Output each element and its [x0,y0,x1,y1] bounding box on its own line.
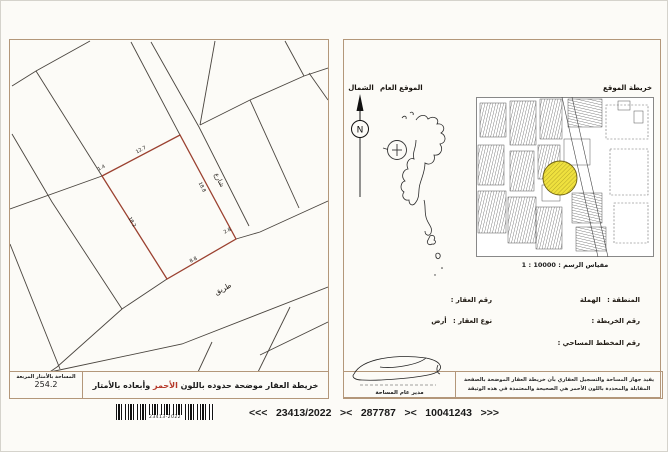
scanned-property-map-document: 1.4 12.7 18.8 2.8 8.8 18.2 شارع طريق الم… [0,0,668,452]
parcel-map-canvas [10,40,328,397]
field-parcel-number: رقم العقار : [451,296,492,304]
field-parcel-number-label: رقم العقار : [451,296,492,304]
barcode-label: 23413-2022 [147,415,183,420]
field-region-label: المنطقة : [607,296,640,304]
certification-line2: المقابلة والمحددة باللون الأحمر هي الصحي… [464,385,654,394]
separator: >< [340,407,352,419]
highlighted-area-circle [543,161,577,195]
caption-prefix: خريطة العقار موضحة حدوده باللون [181,381,319,390]
map-caption: خريطة العقار موضحة حدوده باللون الأحمر و… [93,381,319,390]
location-marker-icon [383,141,407,160]
field-survey-plan-label: رقم المخطط المساحي : [558,339,640,347]
field-region-value: الهملة [580,296,601,304]
document-number: 10041243 [425,407,472,419]
detail-location-map [476,97,654,257]
info-sheet-panel: الشمال الموقع العام خريطة الموقع N [343,39,661,398]
field-property-type-value: أرض [431,317,446,325]
barcode: 23413-2022 [116,404,214,420]
compass-letter: N [357,126,364,136]
general-location-label: الموقع العام [380,84,423,92]
separator: >< [404,407,416,419]
case-number: 23413/2022 [276,407,331,419]
field-property-type-label: نوع العقار : [453,317,492,325]
north-label: الشمال [348,84,374,92]
reference-numbers-strip: <<< 23413/2022 >< 287787 >< 10041243 >>> [249,407,499,419]
caption-suffix: وأبعاده بالأمتار [93,381,151,390]
caption-red-word: الأحمر [153,381,178,390]
location-map-label: خريطة الموقع [603,84,652,92]
close-arrows: >>> [481,407,499,419]
field-map-number: رقم الخريطة : [592,317,640,325]
area-cell: المساحة بالأمتار المربعة 254.2 [9,371,83,399]
certification-cell: يفيد جهاز المساحة والتسجيل العقاري بأن خ… [455,371,663,399]
certification-line1: يفيد جهاز المساحة والتسجيل العقاري بأن خ… [464,376,654,385]
open-arrows: <<< [249,407,267,419]
area-value: 254.2 [10,380,82,389]
field-map-number-label: رقم الخريطة : [592,317,640,325]
field-survey-plan-number: رقم المخطط المساحي : [558,339,640,347]
field-region: المنطقة : الهملة [580,296,640,304]
scale-label: مقياس الرسم : 10000 : 1 [476,261,654,269]
serial-number: 287787 [361,407,396,419]
general-location-map [372,108,472,283]
signature-scribble [348,352,452,394]
parcel-map-panel: 1.4 12.7 18.8 2.8 8.8 18.2 شارع طريق الم… [9,39,329,398]
highlighted-parcel-outline [102,135,236,279]
certification-text: يفيد جهاز المساحة والتسجيل العقاري بأن خ… [464,376,654,395]
field-property-type: نوع العقار : أرض [431,317,492,325]
compass-north-icon: N [349,93,371,201]
map-caption-cell: خريطة العقار موضحة حدوده باللون الأحمر و… [82,371,329,399]
